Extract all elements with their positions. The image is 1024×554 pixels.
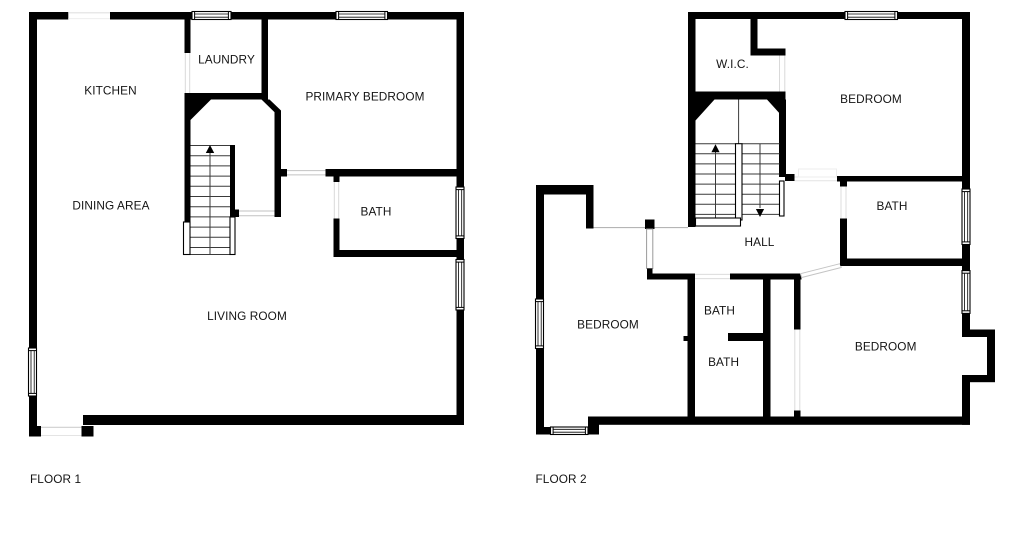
svg-text:W.I.C.: W.I.C. (716, 57, 749, 71)
svg-text:FLOOR 1: FLOOR 1 (30, 472, 81, 486)
svg-text:BEDROOM: BEDROOM (855, 340, 917, 354)
svg-text:BATH: BATH (708, 355, 739, 369)
svg-text:BEDROOM: BEDROOM (577, 318, 639, 332)
svg-text:BEDROOM: BEDROOM (840, 92, 902, 106)
svg-text:PRIMARY BEDROOM: PRIMARY BEDROOM (305, 90, 424, 104)
svg-text:HALL: HALL (745, 235, 775, 249)
svg-text:FLOOR 2: FLOOR 2 (536, 472, 587, 486)
svg-text:BATH: BATH (877, 199, 908, 213)
svg-text:BATH: BATH (704, 303, 735, 317)
svg-text:BATH: BATH (361, 205, 392, 219)
svg-text:LAUNDRY: LAUNDRY (198, 53, 255, 67)
svg-text:DINING AREA: DINING AREA (72, 199, 149, 213)
svg-text:LIVING ROOM: LIVING ROOM (207, 309, 287, 323)
svg-text:KITCHEN: KITCHEN (84, 84, 136, 98)
